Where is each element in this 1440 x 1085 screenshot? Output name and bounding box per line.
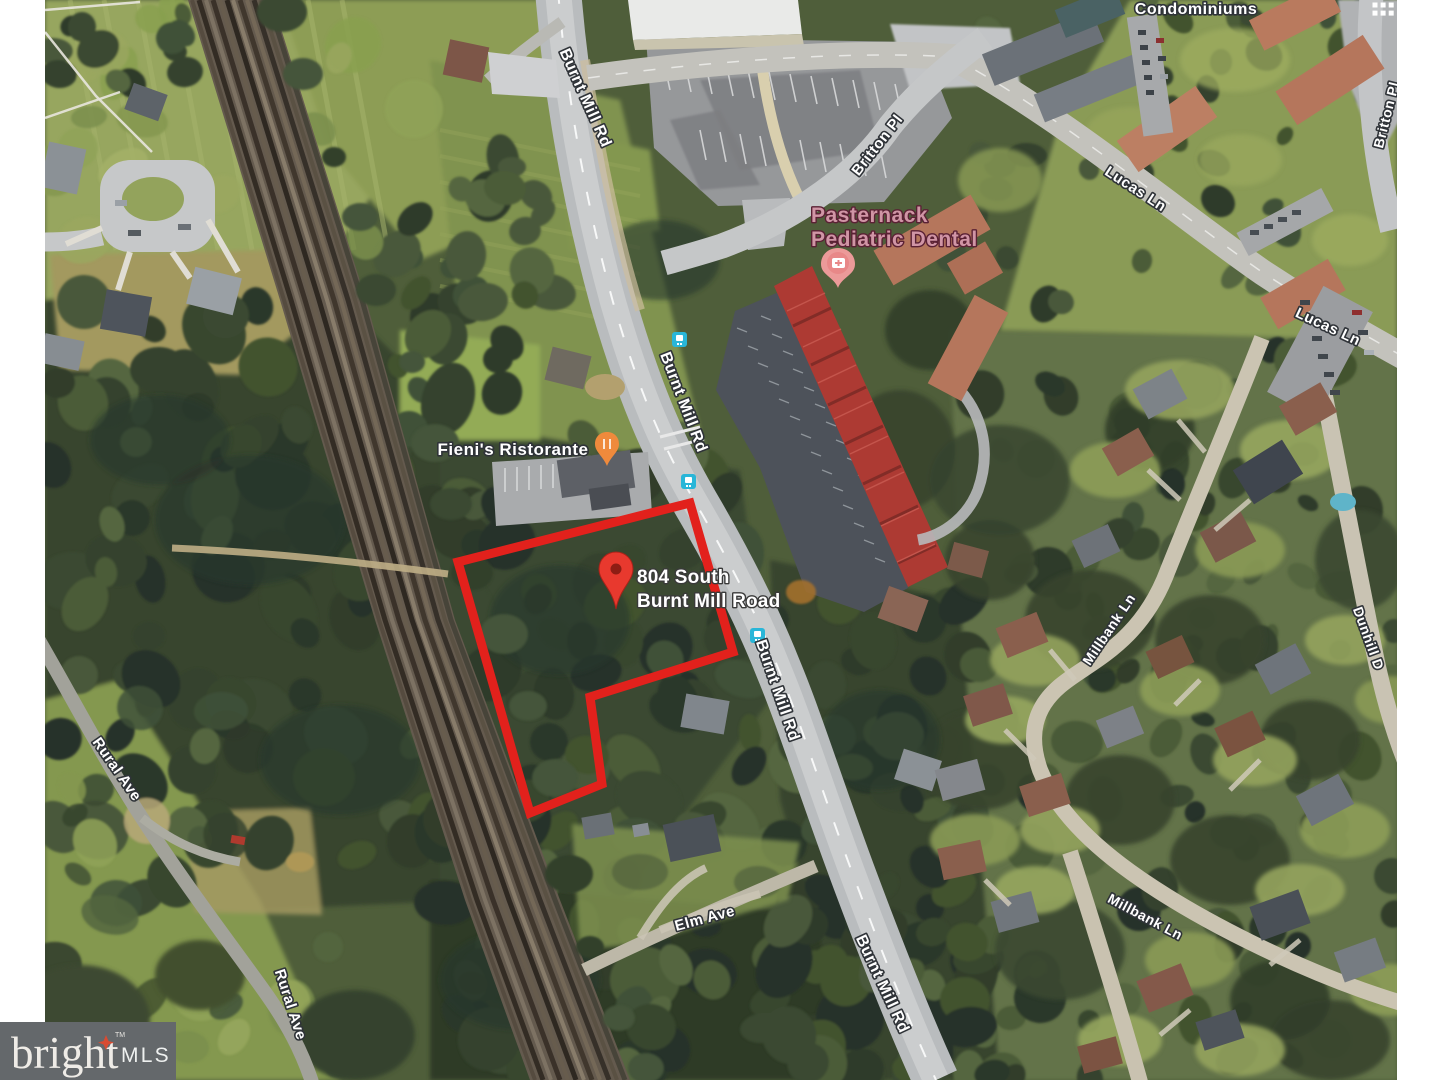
svg-text:Pediatric Dental: Pediatric Dental xyxy=(811,228,978,251)
svg-text:Pasternack: Pasternack xyxy=(811,204,928,227)
svg-text:TM: TM xyxy=(115,1032,125,1039)
svg-text:bright: bright xyxy=(11,1028,119,1078)
svg-text:Fieni's Ristorante: Fieni's Ristorante xyxy=(438,440,589,459)
svg-text:804 South: 804 South xyxy=(637,567,730,588)
svg-text:MLS: MLS xyxy=(121,1044,171,1067)
svg-text:Condominiums: Condominiums xyxy=(1135,1,1257,18)
svg-text:Burnt Mill Road: Burnt Mill Road xyxy=(637,591,780,612)
